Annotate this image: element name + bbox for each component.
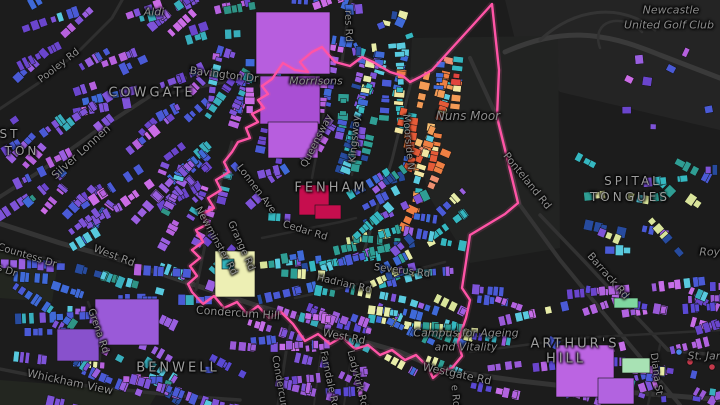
map-canvas[interactable]: COWGATESTTONFENHAMSPITALTONGUESBENWELLAR…	[0, 0, 720, 405]
retail-block-1	[256, 12, 330, 74]
mint-building	[622, 358, 650, 373]
red-poi-dot-2	[709, 364, 715, 370]
teal-inset	[222, 259, 234, 269]
red-poi-dot-1	[687, 359, 693, 365]
purple-block-se-2	[598, 378, 634, 404]
purple-block-sw-1	[95, 299, 159, 345]
crimson-building-b	[315, 205, 341, 219]
pale-yellow-school	[215, 251, 255, 297]
map-render-layer	[0, 0, 720, 405]
purple-block-sw-2	[57, 329, 99, 361]
mint-building-small	[614, 298, 638, 308]
blue-poi-dot	[676, 349, 682, 355]
retail-block-3	[268, 122, 318, 158]
